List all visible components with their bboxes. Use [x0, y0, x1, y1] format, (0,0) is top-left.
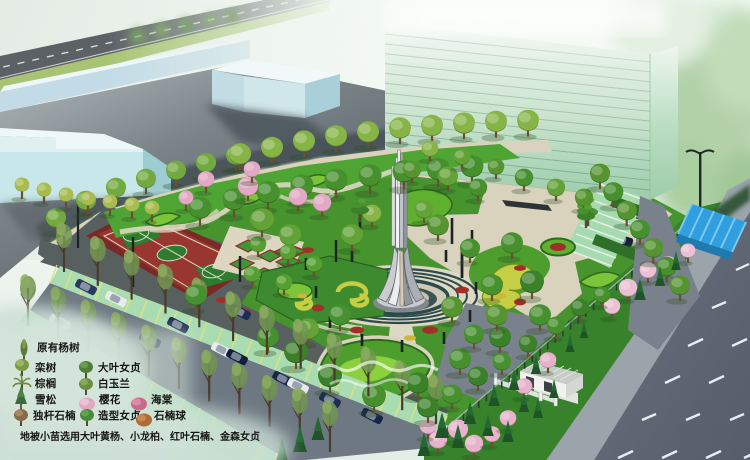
svg-text:大叶女贞: 大叶女贞 [98, 361, 141, 374]
svg-text:地被小苗选用大叶黄杨、小龙柏、红叶石楠、金森女贞: 地被小苗选用大叶黄杨、小龙柏、红叶石楠、金森女贞 [20, 430, 260, 443]
svg-text:樱花: 樱花 [99, 393, 121, 406]
svg-text:独杆石楠: 独杆石楠 [32, 409, 76, 422]
svg-text:栾树: 栾树 [34, 361, 57, 374]
svg-text:造型女贞: 造型女贞 [98, 409, 141, 422]
svg-text:雪松: 雪松 [35, 393, 57, 406]
svg-text:白玉兰: 白玉兰 [98, 377, 130, 390]
svg-text:石楠球: 石楠球 [153, 409, 186, 422]
svg-text:原有杨树: 原有杨树 [37, 341, 80, 354]
svg-text:海棠: 海棠 [151, 393, 173, 406]
svg-text:棕榈: 棕榈 [34, 377, 56, 390]
